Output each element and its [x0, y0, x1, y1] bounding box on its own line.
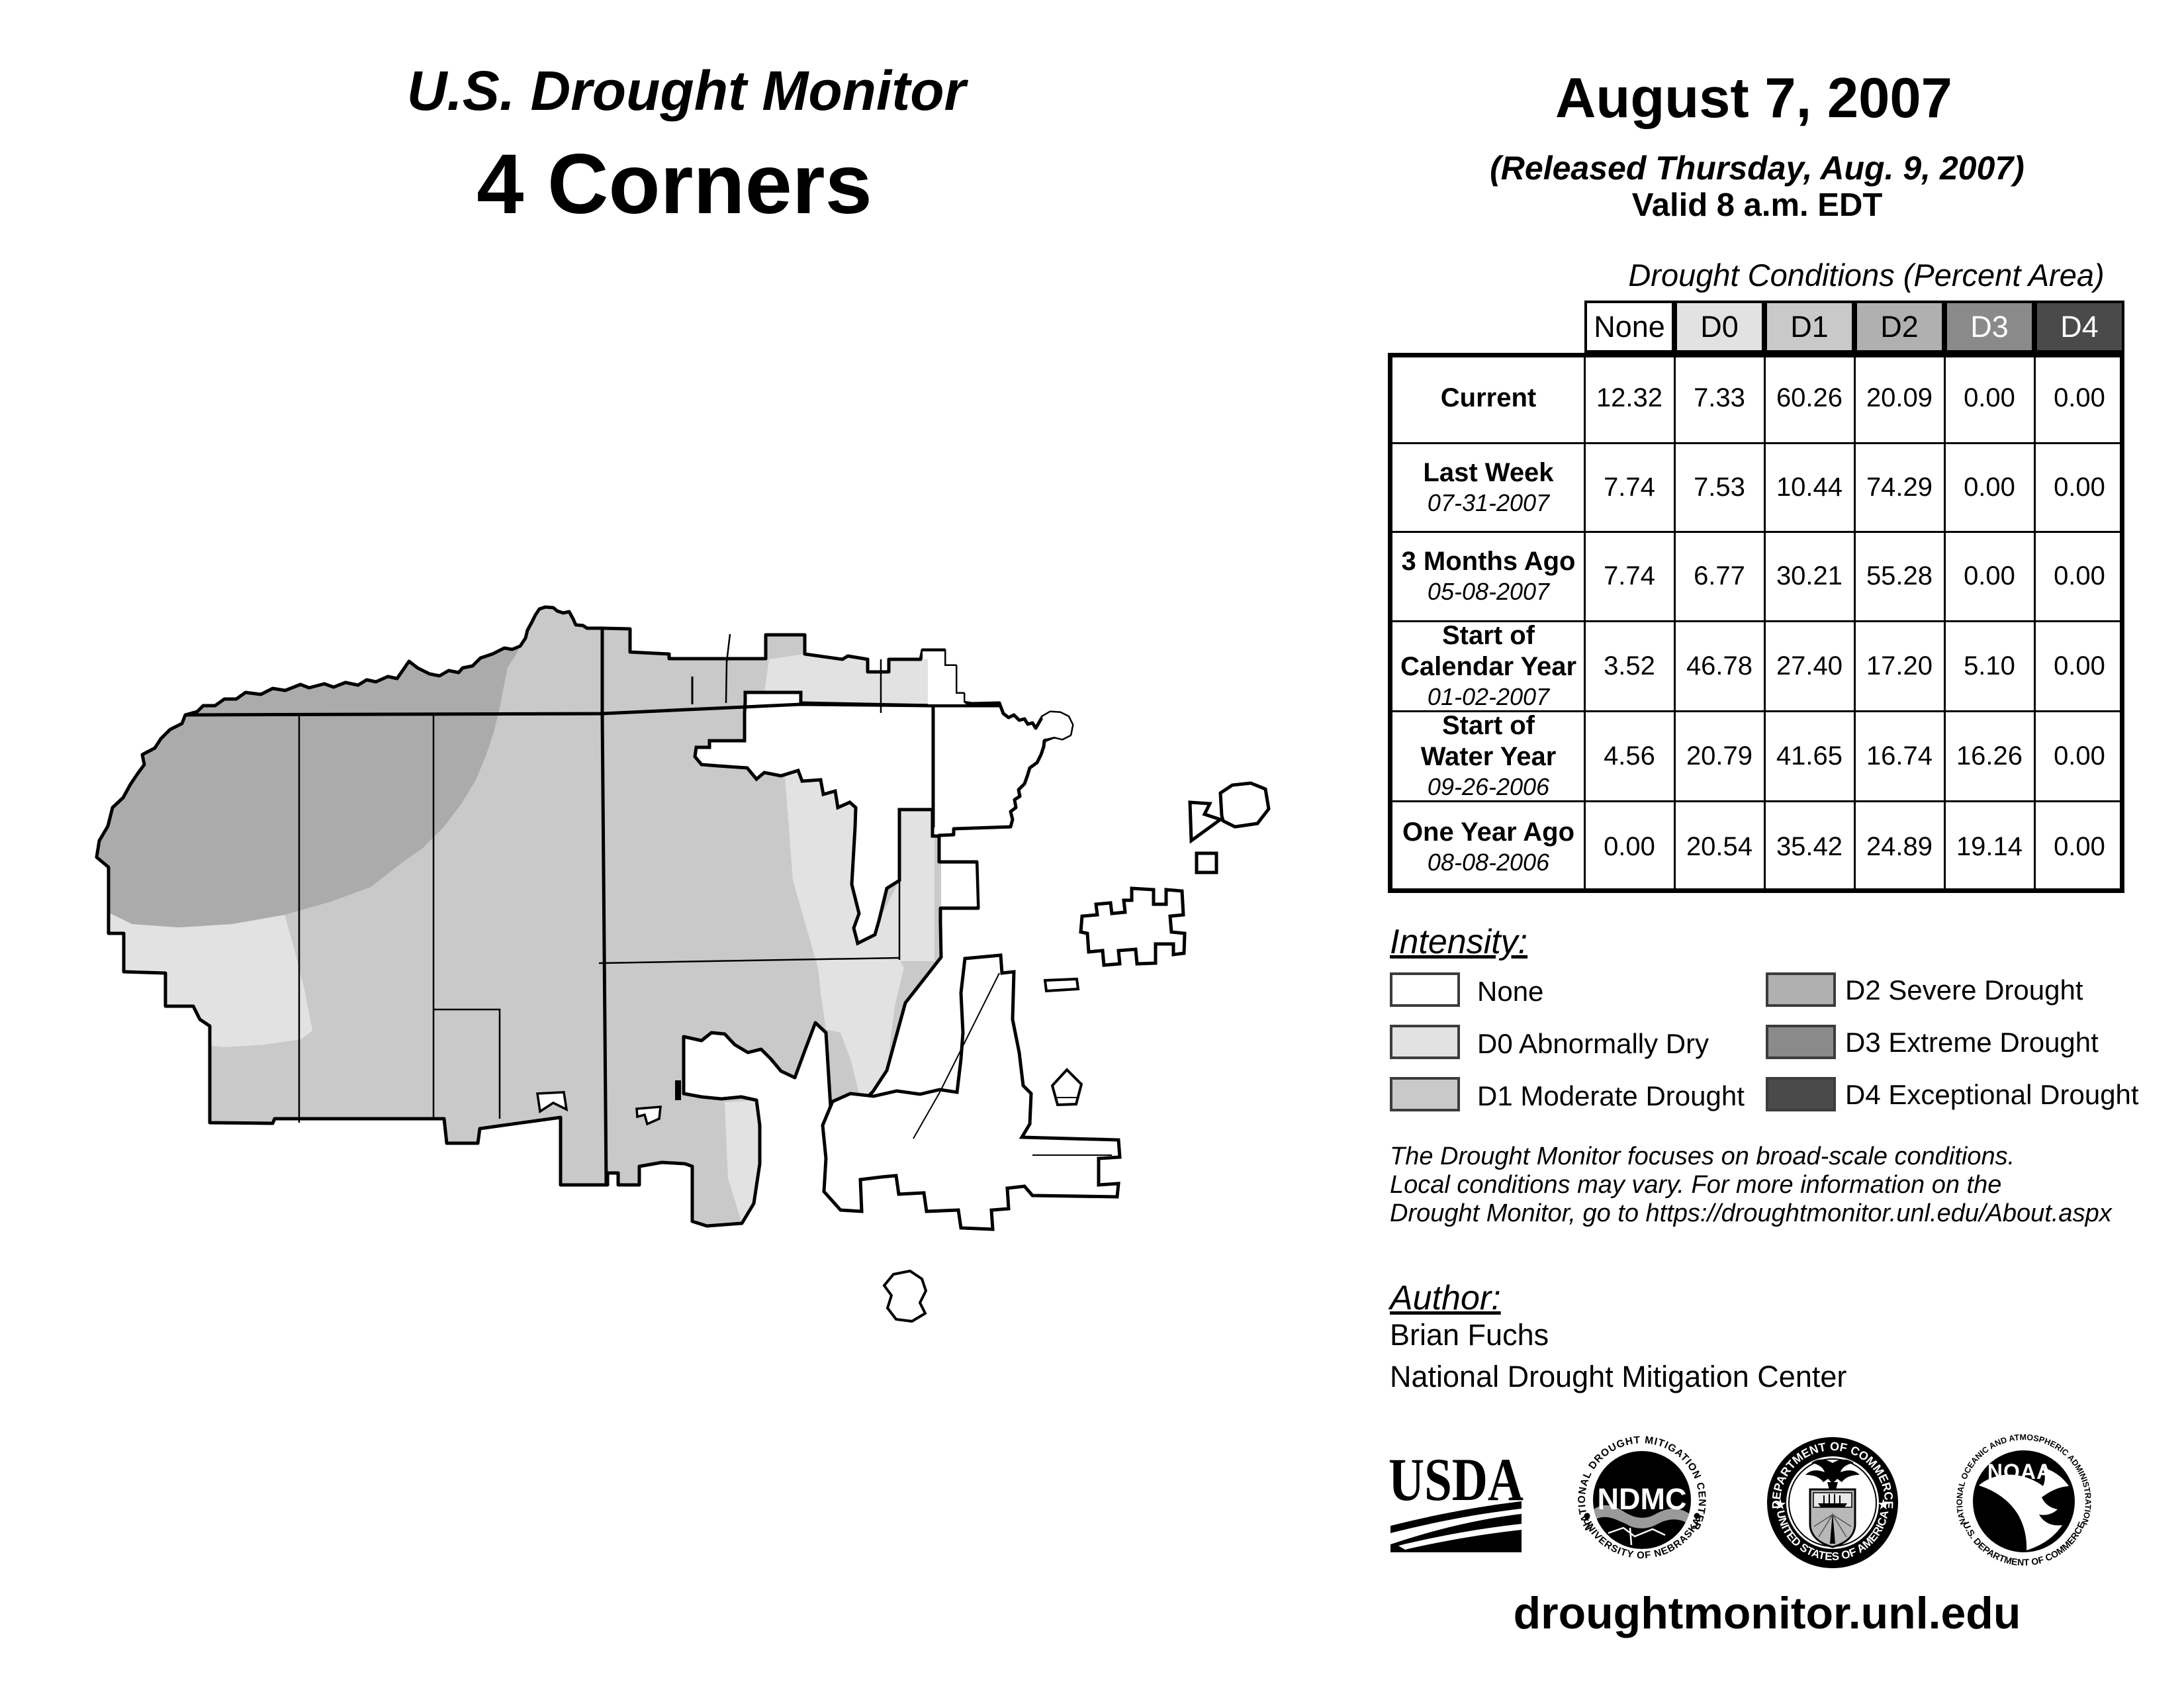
svg-text:NDMC: NDMC	[1598, 1482, 1687, 1516]
svg-text:★: ★	[1877, 1496, 1890, 1513]
svg-text:★: ★	[1774, 1496, 1787, 1513]
svg-text:NOAA: NOAA	[1987, 1460, 2052, 1483]
svg-text:USDA: USDA	[1388, 1446, 1524, 1513]
